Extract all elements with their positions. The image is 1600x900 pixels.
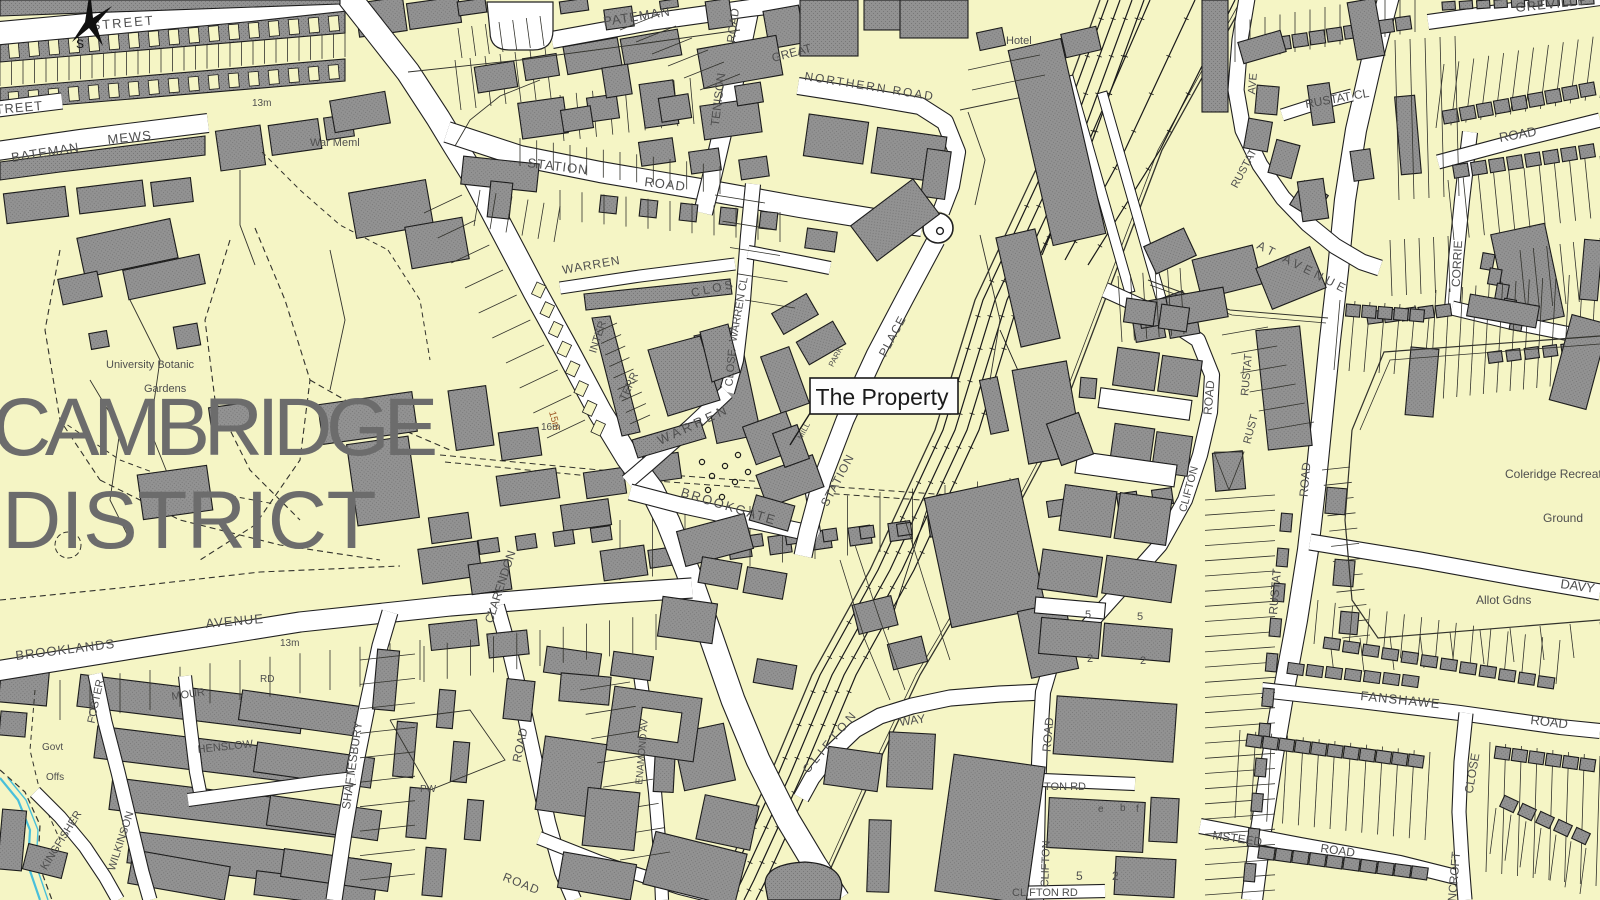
- svg-text:DISTRICT: DISTRICT: [2, 475, 376, 566]
- svg-text:RD: RD: [260, 674, 274, 685]
- svg-text:f: f: [1136, 804, 1139, 815]
- svg-text:16m: 16m: [541, 422, 560, 433]
- svg-text:AVE: AVE: [1246, 73, 1260, 95]
- svg-text:PW: PW: [420, 784, 437, 795]
- svg-text:The Property: The Property: [816, 384, 949, 410]
- svg-text:Hotel: Hotel: [1006, 35, 1032, 47]
- svg-text:CORRIE: CORRIE: [1449, 240, 1465, 287]
- svg-text:5: 5: [1076, 869, 1083, 883]
- svg-text:2: 2: [1087, 653, 1093, 665]
- svg-text:2: 2: [1140, 655, 1146, 667]
- svg-text:Offs: Offs: [46, 772, 64, 783]
- svg-text:2: 2: [1112, 869, 1119, 883]
- svg-text:Govt: Govt: [42, 742, 63, 753]
- svg-text:e: e: [1098, 804, 1104, 815]
- svg-text:War Meml: War Meml: [310, 137, 360, 149]
- svg-text:Gardens: Gardens: [144, 383, 187, 395]
- svg-text:5: 5: [1085, 609, 1091, 621]
- svg-text:CLIFTON: CLIFTON: [1039, 840, 1053, 887]
- svg-text:TON RD: TON RD: [1044, 781, 1086, 793]
- svg-text:Coleridge Recreation: Coleridge Recreation: [1505, 467, 1600, 481]
- svg-text:13m: 13m: [280, 638, 299, 649]
- svg-text:CAMBRIDGE: CAMBRIDGE: [0, 382, 436, 473]
- svg-text:Ground: Ground: [1543, 511, 1583, 525]
- svg-text:b: b: [1120, 803, 1126, 814]
- svg-text:13m: 13m: [252, 98, 271, 109]
- svg-text:Allot Gdns: Allot Gdns: [1476, 593, 1531, 607]
- svg-text:S: S: [76, 37, 84, 51]
- svg-text:CLIFTON RD: CLIFTON RD: [1012, 887, 1078, 899]
- svg-text:University Botanic: University Botanic: [106, 359, 195, 371]
- svg-text:5: 5: [1137, 611, 1143, 623]
